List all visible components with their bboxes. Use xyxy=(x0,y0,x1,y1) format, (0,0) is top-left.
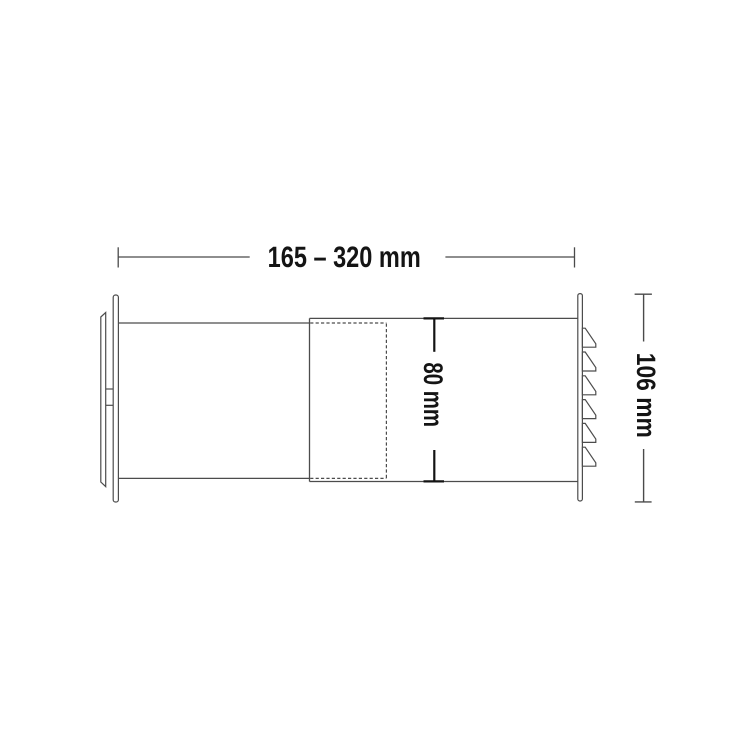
svg-text:165 – 320 mm: 165 – 320 mm xyxy=(268,241,421,274)
svg-text:80 mm: 80 mm xyxy=(418,362,448,427)
svg-text:106 mm: 106 mm xyxy=(631,353,661,438)
